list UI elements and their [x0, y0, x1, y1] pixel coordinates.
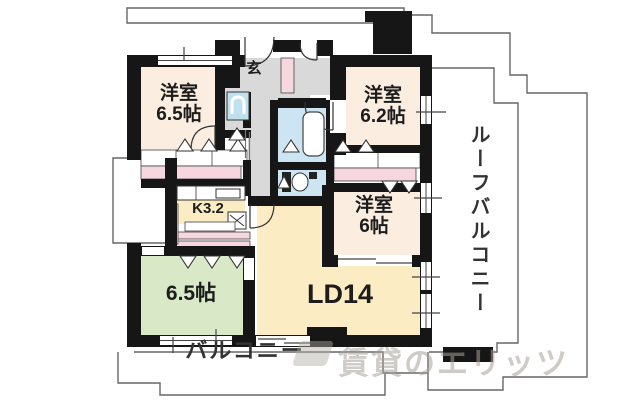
room-label-kitchen: K3.2: [175, 201, 241, 217]
room-label-western3: 洋室 6帖: [326, 196, 422, 237]
room-western2-size: 6.2帖: [340, 107, 426, 128]
room-label-western2: 洋室 6.2帖: [340, 86, 426, 127]
bathtub-icon: [303, 112, 324, 156]
shoe-cabinet: [281, 58, 294, 93]
room-label-japanese: 6.5帖: [139, 283, 243, 306]
roof-balcony-label: ルーフバルコニー: [452, 102, 488, 338]
closet-pink-western1: [141, 166, 241, 179]
room-western1-size: 6.5帖: [141, 105, 217, 126]
room-western2-name: 洋室: [340, 86, 426, 107]
porch-door-arc: [300, 43, 317, 60]
room-western3-size: 6帖: [326, 217, 422, 238]
washbasin-icon: [227, 92, 249, 120]
room-label-entrance: 玄: [244, 61, 264, 77]
closet-pink-western2: [334, 168, 416, 181]
room-label-living: LD14: [285, 280, 395, 309]
floor-corridor: [248, 92, 270, 204]
kitchen-counter: [177, 186, 245, 200]
watermark-text: 賃貸のエリッツ: [338, 338, 569, 383]
kitchen-shelf: [185, 222, 235, 231]
room-western1-name: 洋室: [141, 84, 217, 105]
kitchen-sink: [216, 189, 240, 198]
room-label-western1: 洋室 6.5帖: [141, 84, 217, 125]
floorplan-canvas: 洋室 6.5帖 洋室 6.2帖 洋室 6帖 K3.2 6.5帖 LD14 玄 バ…: [0, 0, 640, 416]
room-western3-name: 洋室: [326, 196, 422, 217]
